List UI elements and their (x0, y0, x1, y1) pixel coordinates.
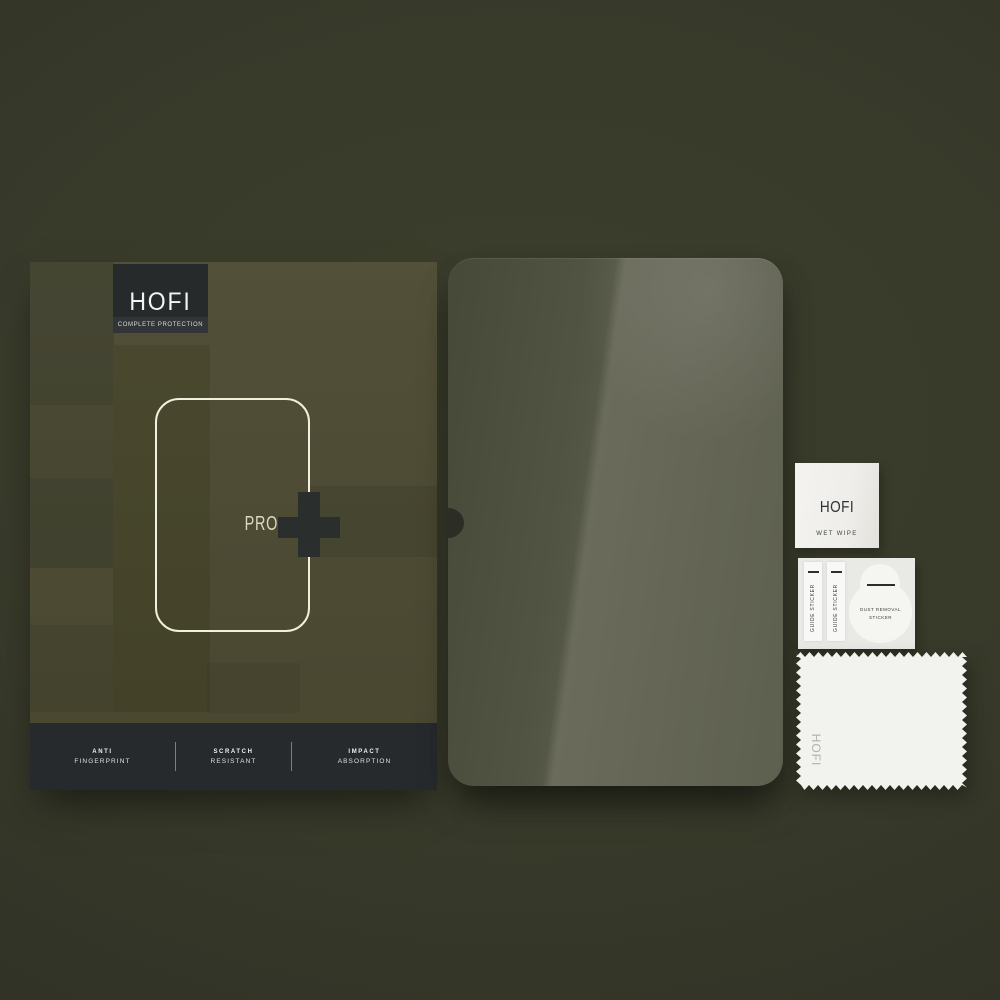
dust-sticker-label-line2: STICKER (849, 614, 912, 622)
glass-reflection (448, 258, 783, 786)
feature-line2: RESISTANT (211, 758, 257, 765)
cloth-brand: HOFI (809, 734, 823, 767)
brand-tagline-strip: COMPLETE PROTECTION (113, 317, 208, 333)
guide-sticker-label: GUIDE STICKER (804, 578, 822, 638)
guide-sticker-strip: GUIDE STICKER (804, 562, 822, 641)
model-label: PRO (243, 514, 278, 534)
sticker-tab-line (808, 571, 819, 573)
wet-wipe-brand: HOFI (801, 499, 872, 517)
plus-icon (278, 492, 340, 557)
feature-scratch-resistant: SCRATCH RESISTANT (176, 749, 291, 765)
cloth-zigzag-shape (796, 652, 967, 790)
guide-sticker-label: GUIDE STICKER (827, 578, 845, 638)
feature-anti-fingerprint: ANTI FINGERPRINT (30, 749, 175, 765)
feature-line1: ANTI (92, 749, 112, 755)
dust-removal-sticker: DUST REMOVAL STICKER (849, 564, 912, 643)
feature-line1: SCRATCH (213, 749, 253, 755)
guide-sticker-strip: GUIDE STICKER (827, 562, 845, 641)
sticker-tab-line (867, 584, 895, 586)
screen-protector-glass (448, 258, 783, 786)
packaging-box: HOFI COMPLETE PROTECTION PRO ANTI FINGER… (30, 262, 437, 790)
sticker-card: GUIDE STICKER GUIDE STICKER DUST REMOVAL… (798, 558, 915, 649)
plus-icon-horizontal-bar (278, 517, 340, 538)
feature-line2: ABSORPTION (338, 758, 392, 765)
feature-impact-absorption: IMPACT ABSORPTION (292, 749, 437, 765)
feature-bar: ANTI FINGERPRINT SCRATCH RESISTANT IMPAC… (30, 723, 437, 790)
microfiber-cloth: HOFI (796, 652, 967, 790)
product-photo-scene: HOFI COMPLETE PROTECTION PRO ANTI FINGER… (0, 0, 1000, 1000)
sticker-tab-line (831, 571, 842, 573)
feature-line2: FINGERPRINT (74, 758, 130, 765)
brand-logo: HOFI (117, 290, 204, 315)
feature-line1: IMPACT (348, 749, 380, 755)
brand-logo-block: HOFI COMPLETE PROTECTION (113, 264, 208, 333)
wet-wipe-packet: HOFI WET WIPE (795, 463, 879, 548)
wet-wipe-label: WET WIPE (795, 531, 879, 537)
brand-tagline: COMPLETE PROTECTION (118, 322, 203, 328)
dust-sticker-label-line1: DUST REMOVAL (849, 606, 912, 614)
dust-sticker-label: DUST REMOVAL STICKER (849, 606, 912, 621)
